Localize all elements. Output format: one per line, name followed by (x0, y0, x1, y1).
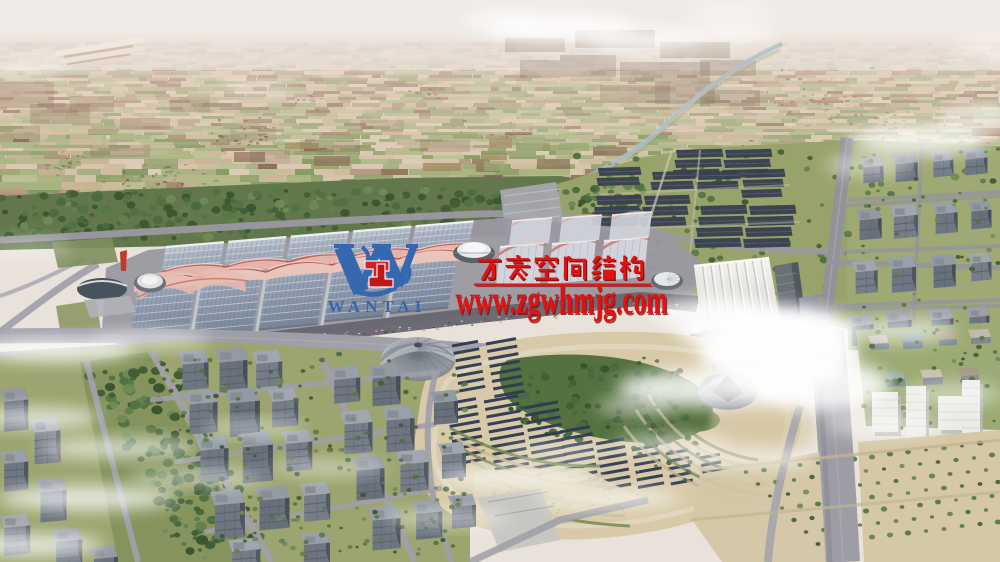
svg-text:WANTAI: WANTAI (328, 297, 427, 316)
svg-text:www.zgwhmjg.com: www.zgwhmjg.com (456, 278, 668, 322)
